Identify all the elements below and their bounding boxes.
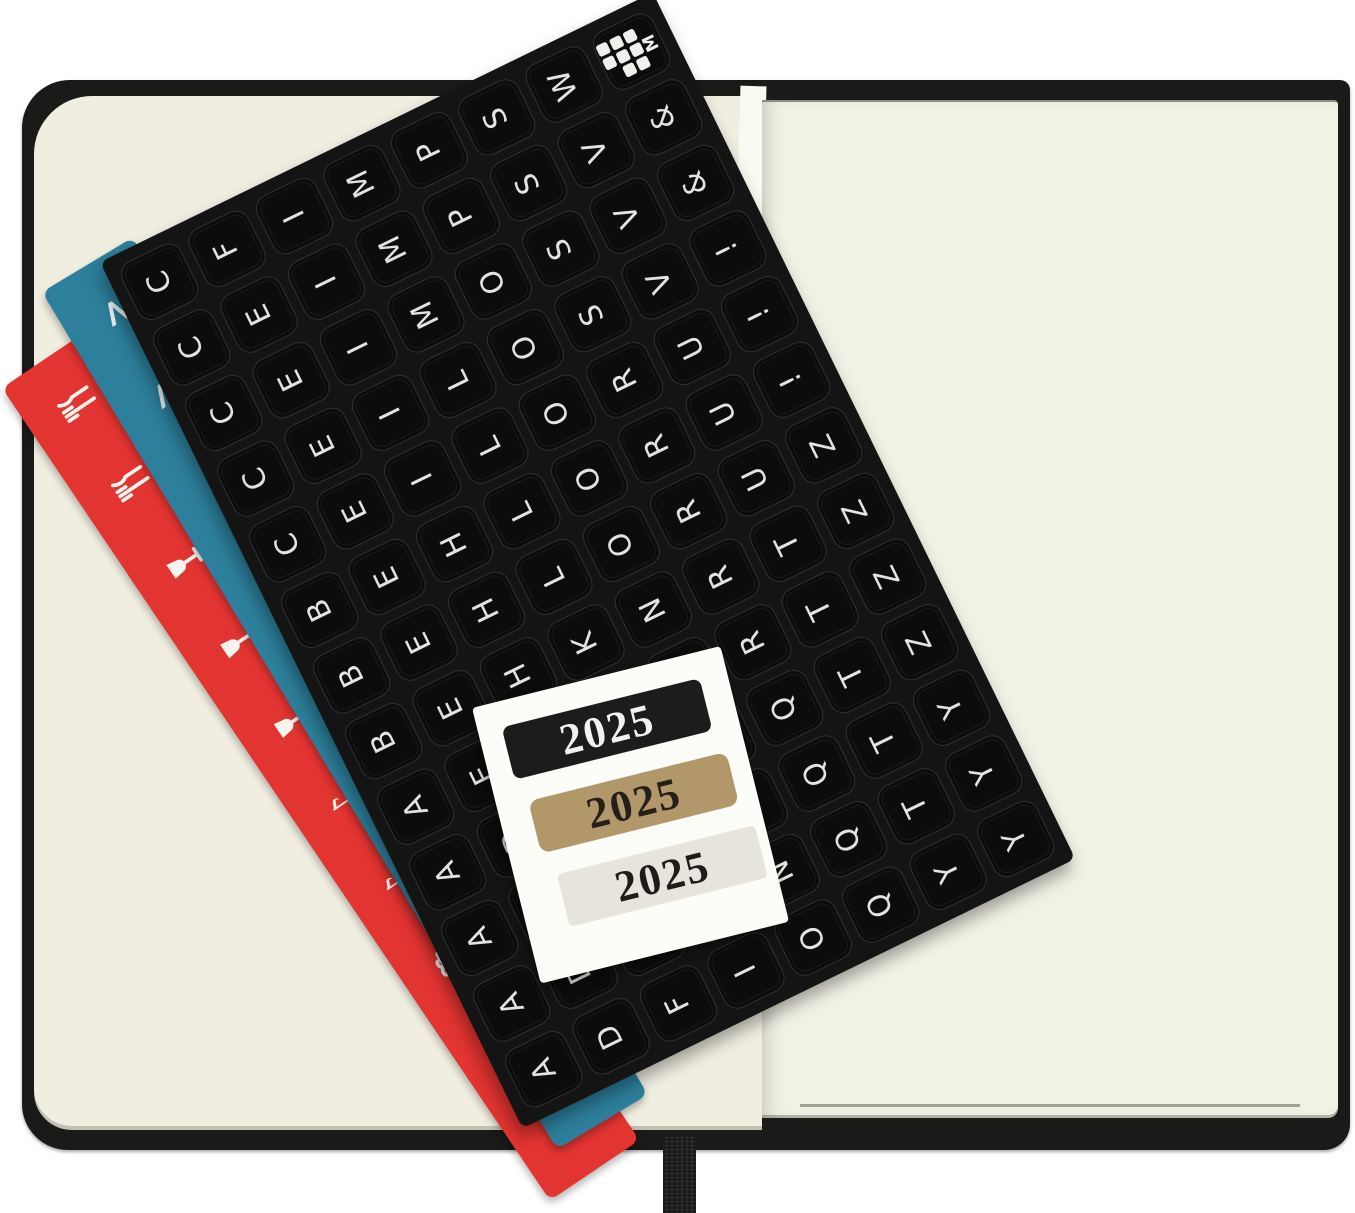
letter-glyph: Q bbox=[766, 691, 803, 725]
letter-glyph: & bbox=[677, 166, 714, 200]
letter-glyph: U bbox=[738, 462, 775, 495]
letter-glyph: A bbox=[526, 1053, 562, 1085]
letter-glyph: R bbox=[671, 495, 707, 527]
logo-letter: M bbox=[640, 31, 663, 54]
letter-glyph: I bbox=[407, 468, 438, 489]
letter-glyph: Z bbox=[806, 430, 842, 462]
letter-glyph: H bbox=[436, 527, 473, 560]
letter-glyph: C bbox=[174, 331, 210, 363]
letter-glyph: Z bbox=[870, 561, 906, 593]
letter-glyph: O bbox=[603, 527, 640, 561]
letter-glyph: I bbox=[731, 960, 762, 981]
letter-glyph: T bbox=[771, 529, 806, 559]
letter-glyph: C bbox=[238, 463, 274, 495]
letter-glyph: U bbox=[674, 331, 711, 364]
letter-glyph: L bbox=[505, 497, 539, 525]
page-bottom-edge bbox=[800, 1104, 1300, 1107]
letter-glyph: Z bbox=[902, 626, 938, 658]
letter-glyph: ! bbox=[711, 237, 743, 261]
letter-glyph: B bbox=[302, 594, 338, 626]
letter-glyph: I bbox=[311, 271, 342, 292]
product-photo: ♪♪ >>>!! CFIMPSWMCEIMPSV&CEIMOSV&CEILOSV… bbox=[0, 0, 1355, 1213]
letter-glyph: T bbox=[803, 595, 838, 625]
letter-glyph: B bbox=[334, 660, 370, 692]
letter-glyph: Q bbox=[862, 888, 899, 922]
letter-glyph: E bbox=[242, 299, 277, 329]
letter-glyph: F bbox=[210, 235, 245, 264]
letter-glyph: Y bbox=[998, 824, 1033, 854]
letter-glyph: C bbox=[142, 266, 178, 298]
letter-glyph: S bbox=[511, 168, 546, 198]
letter-sticker: I bbox=[702, 927, 789, 1013]
letter-sticker: D bbox=[567, 993, 654, 1079]
letter-glyph: L bbox=[441, 366, 475, 394]
letter-sticker: A bbox=[500, 1026, 587, 1112]
letter-glyph: T bbox=[899, 791, 934, 821]
letter-glyph: O bbox=[539, 396, 576, 430]
letter-glyph: M bbox=[407, 296, 445, 332]
letter-glyph: E bbox=[402, 628, 437, 658]
letter-glyph: P bbox=[412, 136, 447, 165]
letter-glyph: R bbox=[639, 430, 675, 462]
letter-glyph: D bbox=[593, 1019, 630, 1053]
letter-glyph: O bbox=[507, 330, 544, 364]
letter-glyph: T bbox=[835, 660, 870, 690]
letter-glyph: & bbox=[645, 100, 682, 134]
letter-glyph: ! bbox=[775, 368, 807, 392]
letter-glyph: T bbox=[867, 726, 902, 756]
letter-glyph: A bbox=[430, 857, 466, 889]
letter-glyph: I bbox=[375, 402, 406, 423]
letter-glyph: Y bbox=[931, 857, 966, 887]
letter-glyph: V bbox=[578, 134, 614, 166]
letter-sticker: Y bbox=[972, 796, 1059, 882]
letter-glyph: Q bbox=[798, 756, 835, 790]
letter-glyph: V bbox=[610, 200, 646, 232]
letter-glyph: Y bbox=[966, 759, 1001, 789]
letter-glyph: K bbox=[568, 627, 604, 658]
letter-glyph: ! bbox=[743, 302, 775, 326]
letter-glyph: E bbox=[370, 562, 405, 592]
ribbon-bookmark bbox=[663, 1136, 696, 1213]
letter-glyph: U bbox=[706, 396, 743, 429]
letter-glyph: C bbox=[206, 397, 242, 429]
letter-glyph: A bbox=[462, 922, 498, 954]
letter-glyph: M bbox=[375, 231, 413, 267]
letter-glyph: Y bbox=[934, 693, 969, 723]
letter-glyph: B bbox=[366, 725, 402, 757]
letter-glyph: S bbox=[575, 299, 610, 329]
letter-glyph: R bbox=[703, 561, 739, 593]
letter-glyph: O bbox=[795, 920, 832, 954]
letter-glyph: R bbox=[735, 626, 771, 658]
letter-glyph: O bbox=[475, 264, 512, 298]
letter-glyph: O bbox=[571, 461, 608, 495]
letter-glyph: Z bbox=[838, 495, 874, 527]
letter-glyph: F bbox=[661, 989, 696, 1018]
letter-glyph: A bbox=[398, 791, 434, 823]
letter-glyph: S bbox=[543, 234, 578, 264]
letter-glyph: H bbox=[500, 659, 537, 692]
letter-glyph: Q bbox=[830, 822, 867, 856]
letter-glyph: L bbox=[473, 432, 507, 460]
letter-glyph: C bbox=[270, 528, 306, 560]
letter-glyph: N bbox=[635, 593, 672, 626]
letter-glyph: V bbox=[642, 266, 678, 298]
letter-sticker: Y bbox=[905, 829, 992, 915]
letter-glyph: E bbox=[306, 431, 341, 461]
letter-glyph: M bbox=[343, 165, 381, 201]
letter-glyph: L bbox=[537, 563, 571, 591]
letter-glyph: E bbox=[274, 365, 309, 395]
letter-sticker: F bbox=[635, 960, 722, 1046]
letter-glyph: S bbox=[479, 102, 514, 132]
letter-glyph: E bbox=[434, 693, 469, 723]
letter-glyph: P bbox=[444, 201, 479, 230]
letter-glyph: R bbox=[607, 364, 643, 396]
letter-glyph: A bbox=[494, 988, 530, 1020]
letter-glyph: I bbox=[343, 337, 374, 358]
letter-glyph: H bbox=[468, 593, 505, 626]
letter-sticker: Q bbox=[837, 862, 924, 948]
letter-glyph: E bbox=[338, 496, 373, 526]
letter-glyph: I bbox=[279, 206, 310, 227]
letter-glyph: W bbox=[544, 65, 584, 105]
